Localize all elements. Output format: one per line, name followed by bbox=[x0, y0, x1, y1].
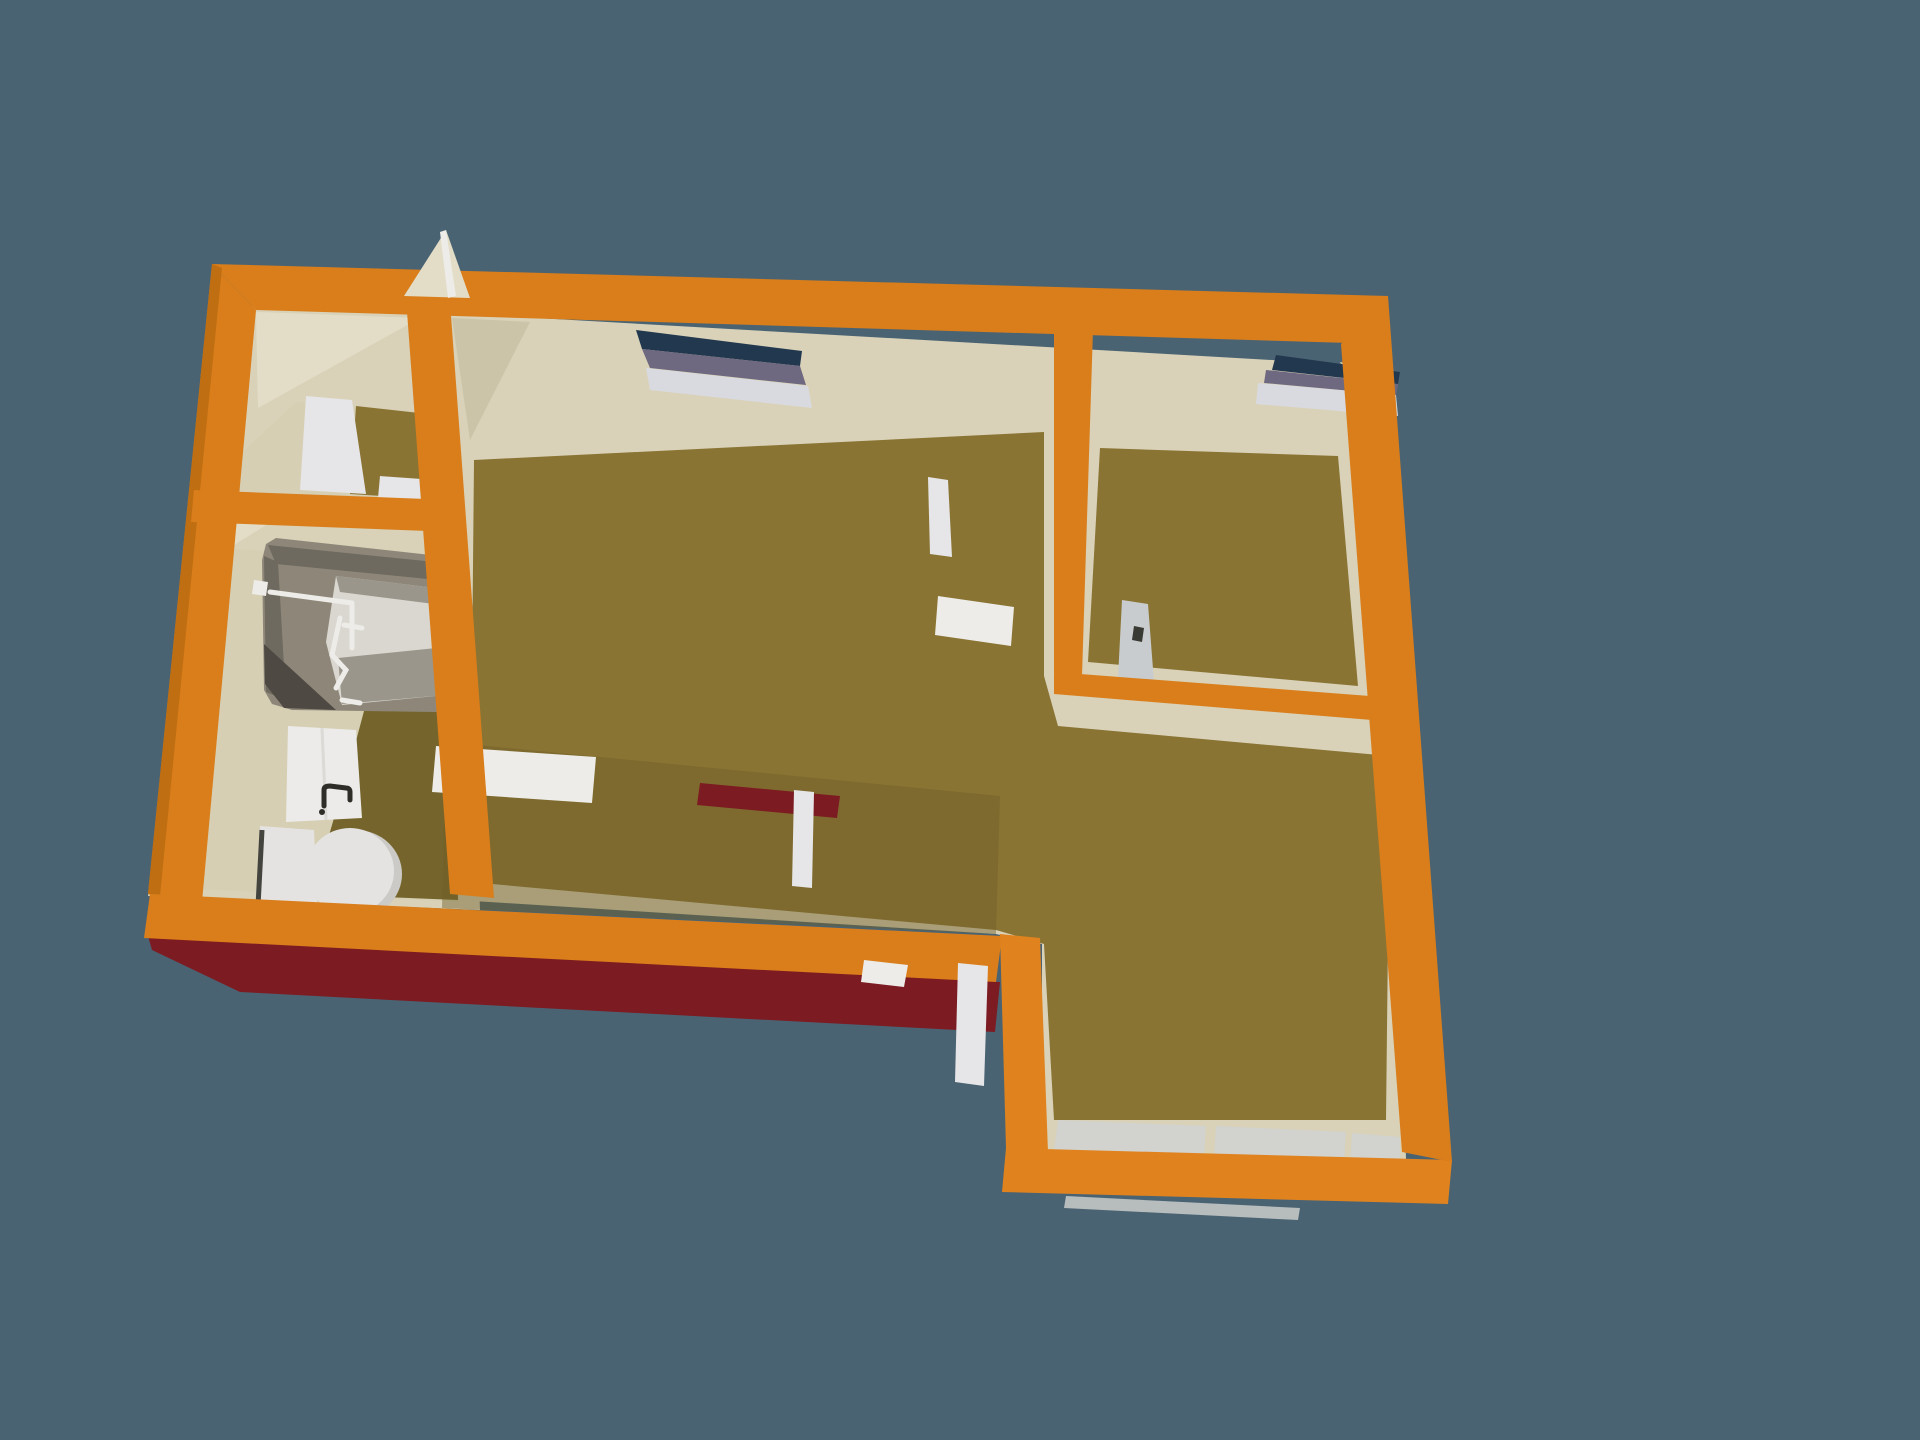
shower-head bbox=[252, 580, 268, 596]
washbasin-drain bbox=[319, 809, 325, 815]
toilet-bowl bbox=[306, 828, 394, 914]
floorplan-3d-viewport[interactable] bbox=[0, 0, 1920, 1440]
notch-wall bbox=[1000, 934, 1048, 1152]
door-leaf-south bbox=[792, 790, 814, 888]
bedroom-door-handle bbox=[1132, 626, 1144, 642]
door-leaf-standing bbox=[928, 477, 952, 557]
bedroom-door-jamb bbox=[1118, 600, 1154, 682]
exterior-door-leaf-open bbox=[955, 963, 988, 1086]
